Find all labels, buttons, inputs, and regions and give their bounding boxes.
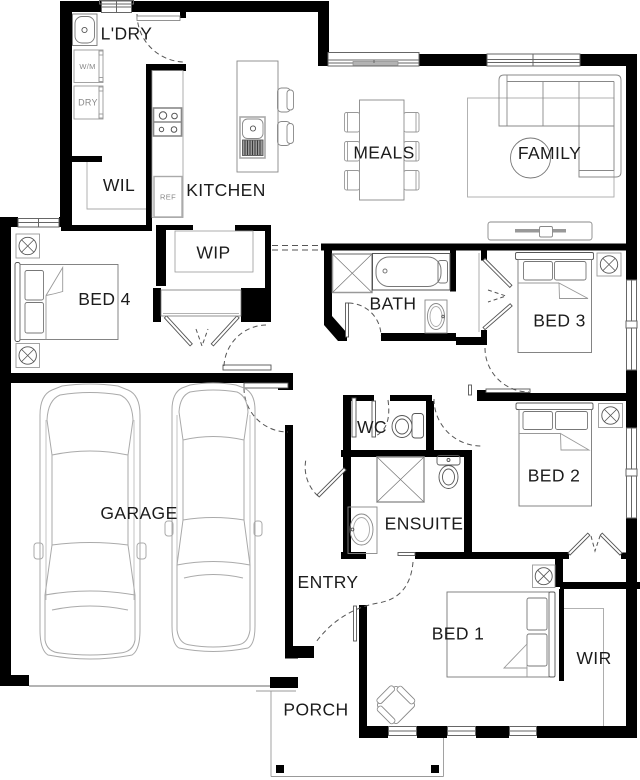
svg-text:BATH: BATH (370, 294, 417, 314)
svg-text:DRY: DRY (78, 98, 98, 108)
svg-text:L'DRY: L'DRY (101, 24, 153, 44)
svg-text:ENTRY: ENTRY (298, 572, 359, 592)
svg-text:W/M: W/M (79, 62, 95, 71)
svg-text:REF: REF (160, 193, 176, 202)
svg-text:WIR: WIR (576, 648, 611, 668)
svg-text:FAMILY: FAMILY (518, 143, 581, 163)
svg-text:BED 3: BED 3 (533, 311, 586, 331)
svg-text:BED 2: BED 2 (528, 466, 581, 486)
svg-text:BED 1: BED 1 (432, 624, 485, 644)
svg-text:ENSUITE: ENSUITE (385, 514, 464, 534)
svg-text:WC: WC (357, 417, 387, 437)
svg-text:BED 4: BED 4 (78, 289, 131, 309)
svg-text:MEALS: MEALS (353, 143, 414, 163)
svg-text:KITCHEN: KITCHEN (186, 180, 266, 200)
svg-text:PORCH: PORCH (283, 700, 348, 720)
svg-text:GARAGE: GARAGE (100, 503, 177, 523)
svg-text:WIL: WIL (103, 175, 135, 195)
svg-text:WIP: WIP (196, 243, 230, 263)
